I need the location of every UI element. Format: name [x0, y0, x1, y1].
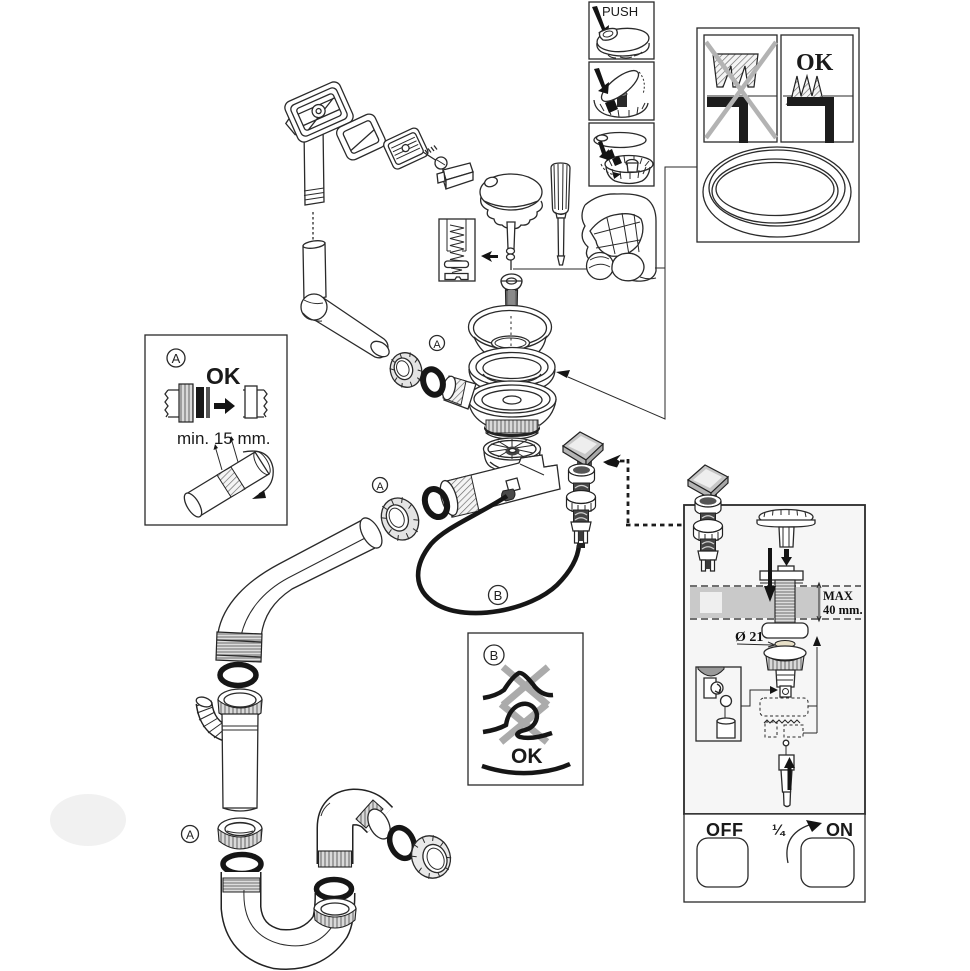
svg-text:OFF: OFF — [706, 820, 744, 840]
svg-text:PUSH: PUSH — [602, 4, 638, 19]
svg-text:¼: ¼ — [772, 822, 786, 839]
svg-text:B: B — [494, 588, 503, 603]
svg-text:OK: OK — [511, 745, 543, 768]
svg-text:MAX: MAX — [823, 589, 853, 603]
svg-text:A: A — [172, 351, 181, 366]
svg-text:Ø 21: Ø 21 — [735, 630, 763, 645]
svg-text:A: A — [433, 339, 441, 351]
svg-text:OK: OK — [796, 50, 834, 76]
svg-text:B: B — [490, 648, 499, 663]
svg-text:min. 15 mm.: min. 15 mm. — [177, 429, 271, 448]
svg-text:ON: ON — [826, 820, 853, 840]
svg-text:OK: OK — [206, 363, 241, 389]
svg-text:A: A — [376, 481, 384, 493]
svg-text:A: A — [186, 828, 194, 842]
svg-text:40 mm.: 40 mm. — [823, 603, 863, 617]
